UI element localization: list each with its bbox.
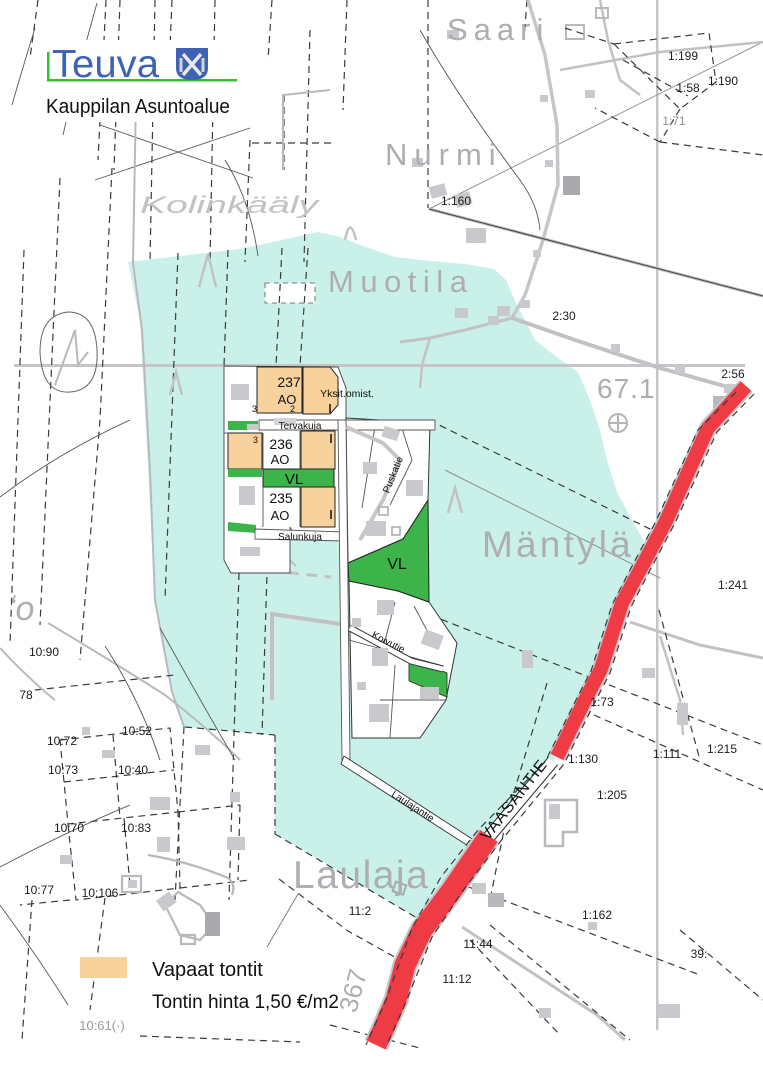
svg-text:10:70: 10:70 bbox=[54, 821, 84, 835]
svg-text:11:2: 11:2 bbox=[349, 904, 372, 918]
svg-text:10:52: 10:52 bbox=[122, 724, 152, 738]
svg-text:Tervakuja: Tervakuja bbox=[279, 421, 322, 432]
svg-text:10:77: 10:77 bbox=[24, 883, 54, 897]
svg-text:1:130: 1:130 bbox=[568, 752, 598, 766]
svg-text:10:72: 10:72 bbox=[47, 734, 77, 748]
svg-text:67.1: 67.1 bbox=[597, 373, 656, 404]
svg-text:2:56: 2:56 bbox=[721, 367, 745, 381]
svg-text:1:160: 1:160 bbox=[441, 194, 471, 208]
svg-text:Yksit.omist.: Yksit.omist. bbox=[320, 388, 374, 400]
svg-text:AO: AO bbox=[271, 508, 290, 523]
svg-text:1:241: 1:241 bbox=[718, 578, 748, 592]
svg-text:10:61(·): 10:61(·) bbox=[79, 1018, 125, 1033]
svg-text:78: 78 bbox=[19, 688, 33, 702]
svg-text:Vapaat tontit: Vapaat tontit bbox=[152, 959, 263, 981]
svg-text:VL: VL bbox=[285, 471, 303, 488]
svg-text:2:30: 2:30 bbox=[552, 309, 576, 323]
svg-text:237: 237 bbox=[277, 374, 301, 390]
svg-text:235: 235 bbox=[269, 490, 293, 506]
svg-text:1:111: 1:111 bbox=[653, 747, 682, 761]
svg-text:Kolinkääly: Kolinkääly bbox=[140, 192, 321, 219]
svg-text:Muotila: Muotila bbox=[328, 264, 473, 299]
svg-text:39:: 39: bbox=[691, 947, 708, 961]
svg-text:Mäntylä: Mäntylä bbox=[482, 524, 634, 565]
svg-text:Kauppilan Asuntoalue: Kauppilan Asuntoalue bbox=[46, 95, 230, 118]
svg-text:10:40: 10:40 bbox=[118, 763, 148, 777]
svg-text:10:90: 10:90 bbox=[29, 645, 59, 659]
svg-text:1:215: 1:215 bbox=[707, 742, 737, 756]
svg-text:10:73: 10:73 bbox=[48, 763, 78, 777]
svg-text:AO: AO bbox=[271, 452, 290, 467]
svg-text:3: 3 bbox=[252, 404, 257, 414]
svg-text:Tontin hinta 1,50 €/m2: Tontin hinta 1,50 €/m2 bbox=[152, 992, 339, 1013]
svg-text:11:12: 11:12 bbox=[442, 972, 471, 986]
svg-text:1:190: 1:190 bbox=[708, 74, 738, 88]
svg-text:Laulaja: Laulaja bbox=[293, 854, 429, 897]
svg-text:Saari: Saari bbox=[447, 12, 549, 47]
svg-text:1:73: 1:73 bbox=[590, 695, 614, 709]
svg-text:10:83: 10:83 bbox=[121, 821, 151, 835]
svg-text:3: 3 bbox=[253, 435, 258, 445]
svg-text:1:205: 1:205 bbox=[597, 788, 627, 802]
svg-text:VL: VL bbox=[387, 556, 407, 573]
svg-text:Nurmi: Nurmi bbox=[385, 137, 503, 172]
svg-text:ʻo: ʻo bbox=[8, 590, 34, 628]
svg-text:1:199: 1:199 bbox=[668, 49, 698, 63]
svg-text:10:106: 10:106 bbox=[82, 886, 119, 900]
svg-text:Salunkuja: Salunkuja bbox=[278, 532, 322, 543]
svg-text:236: 236 bbox=[269, 436, 293, 452]
svg-text:1:58: 1:58 bbox=[676, 81, 700, 95]
svg-text:2: 2 bbox=[290, 404, 295, 414]
svg-text:1:162: 1:162 bbox=[582, 908, 612, 922]
svg-text:1:71: 1:71 bbox=[662, 114, 686, 128]
svg-text:11:44: 11:44 bbox=[463, 937, 492, 951]
svg-text:Teuva: Teuva bbox=[52, 43, 159, 86]
